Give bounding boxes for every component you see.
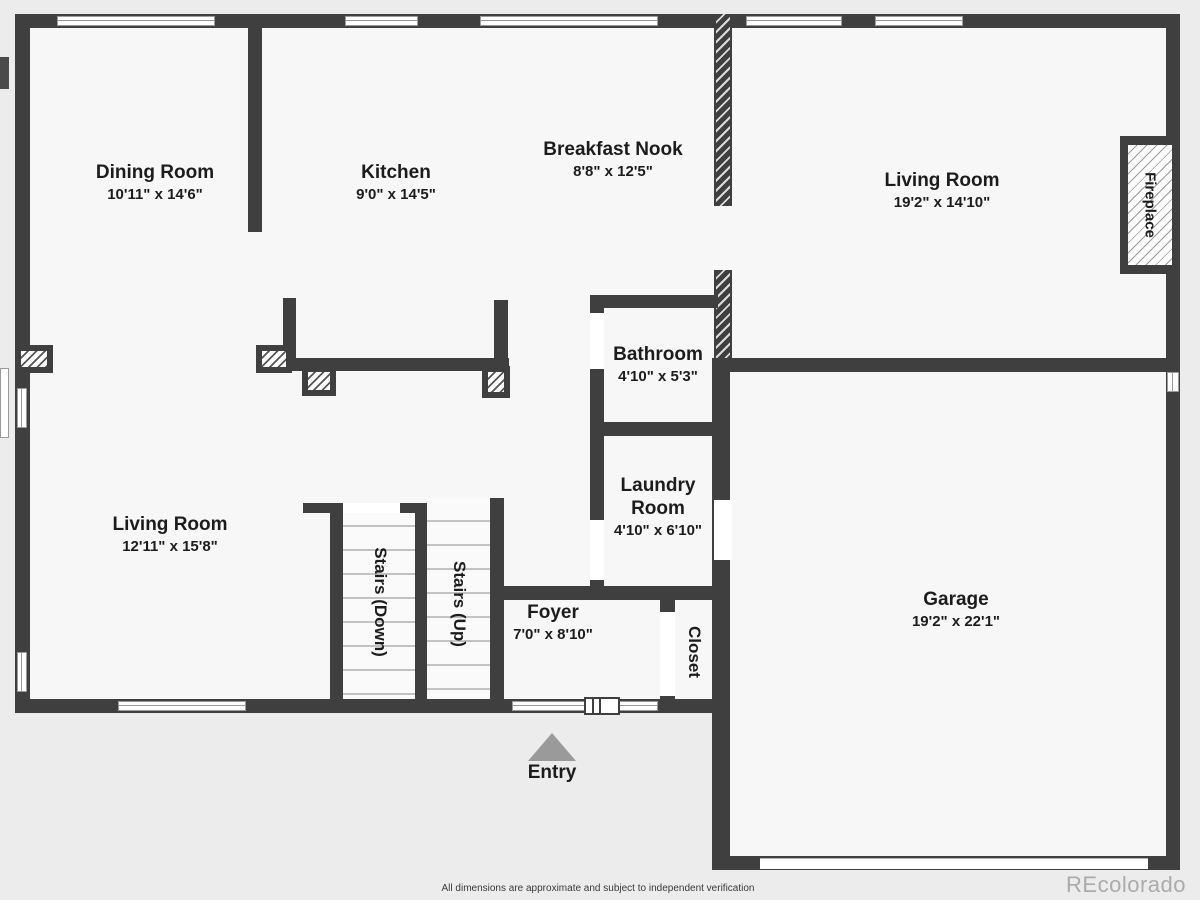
room-name: Living Room	[112, 513, 227, 536]
room-name: Kitchen	[356, 161, 436, 184]
window-breakfast-nook	[480, 16, 658, 26]
window-kitchen	[345, 16, 418, 26]
room-dims: 19'2" x 14'10"	[884, 194, 999, 211]
room-dims: 12'11" x 15'8"	[112, 538, 227, 555]
room-label-living-lower: Living Room 12'11" x 15'8"	[112, 513, 227, 555]
room-label-garage: Garage 19'2" x 22'1"	[912, 588, 1000, 630]
room-dims: 19'2" x 22'1"	[912, 613, 1000, 630]
room-dims: 4'10" x 6'10"	[599, 522, 717, 539]
room-name: Living Room	[884, 169, 999, 192]
garage-door-opening	[760, 858, 1148, 869]
wall-dining-kitchen-divider	[248, 28, 262, 232]
entry-label-block: Entry	[528, 761, 577, 784]
wall-foyer-top	[504, 586, 730, 600]
room-name: Foyer	[513, 601, 593, 624]
room-dims: 8'8" x 12'5"	[543, 163, 682, 180]
floor-plan-page: { "page": { "footer_disclaimer": "All di…	[0, 0, 1200, 900]
room-dims: 7'0" x 8'10"	[513, 626, 593, 643]
post-hatch	[308, 372, 330, 390]
room-name: Breakfast Nook	[543, 138, 682, 161]
window-living-lower	[118, 701, 246, 711]
room-name: Laundry Room	[599, 474, 717, 520]
post-kitchen-b	[302, 366, 336, 396]
room-label-dining: Dining Room 10'11" x 14'6"	[96, 161, 214, 203]
post-left-wall	[15, 345, 53, 373]
wall-stairs-left	[330, 503, 343, 713]
post-hatch	[488, 372, 504, 392]
wall-stairs-top-cap	[400, 503, 427, 513]
room-label-living-upper: Living Room 19'2" x 14'10"	[884, 169, 999, 211]
window-living-upper-1	[746, 16, 842, 26]
post-kitchen-a	[256, 345, 292, 373]
wall-living-garage-divider	[714, 358, 1180, 372]
edge-mark-top-left	[0, 57, 9, 89]
window-garage-right	[1167, 372, 1179, 392]
door-opening-closet	[660, 612, 675, 696]
room-label-foyer: Foyer 7'0" x 8'10"	[513, 601, 593, 643]
wall-kitchen-stub-right	[494, 300, 508, 370]
watermark: REcolorado	[1066, 872, 1186, 898]
entry-arrow-icon	[528, 733, 576, 761]
wall-bathroom-top	[590, 295, 718, 308]
room-label-bathroom: Bathroom 4'10" x 5'3"	[613, 343, 703, 385]
room-dims: 4'10" x 5'3"	[613, 368, 703, 385]
wall-sliding-divider-lower	[714, 270, 732, 364]
opening-stairs-down-top	[343, 503, 400, 513]
disclaimer-text: All dimensions are approximate and subje…	[442, 883, 755, 894]
window-living-upper-2	[875, 16, 963, 26]
room-name: Bathroom	[613, 343, 703, 366]
wall-stairs-top-stub	[303, 503, 343, 513]
window-left-1	[17, 388, 27, 428]
window-dining	[57, 16, 215, 26]
door-opening-bathroom	[590, 313, 604, 369]
stairs-down-label: Stairs (Down)	[370, 547, 390, 657]
post-hatch	[262, 351, 286, 367]
wall-stairs-right	[490, 498, 504, 713]
closet-label: Closet	[684, 626, 704, 678]
window-left-2	[17, 652, 27, 692]
wall-stairs-middle	[415, 503, 427, 713]
edge-mark-left-window	[0, 368, 9, 438]
room-label-breakfast-nook: Breakfast Nook 8'8" x 12'5"	[543, 138, 682, 180]
entry-label: Entry	[528, 761, 577, 784]
room-dims: 10'11" x 14'6"	[96, 186, 214, 203]
stairs-up-label: Stairs (Up)	[449, 561, 469, 647]
fireplace-label: Fireplace	[1142, 172, 1159, 238]
room-dims: 9'0" x 14'5"	[356, 186, 436, 203]
entry-door-icon	[584, 697, 620, 715]
post-hatch	[21, 351, 47, 367]
wall-sliding-divider-upper	[714, 14, 732, 206]
wall-bathroom-bottom	[590, 422, 730, 436]
post-kitchen-c	[482, 366, 510, 398]
room-label-laundry: Laundry Room 4'10" x 6'10"	[599, 474, 717, 539]
room-name: Garage	[912, 588, 1000, 611]
room-name: Dining Room	[96, 161, 214, 184]
room-label-kitchen: Kitchen 9'0" x 14'5"	[356, 161, 436, 203]
